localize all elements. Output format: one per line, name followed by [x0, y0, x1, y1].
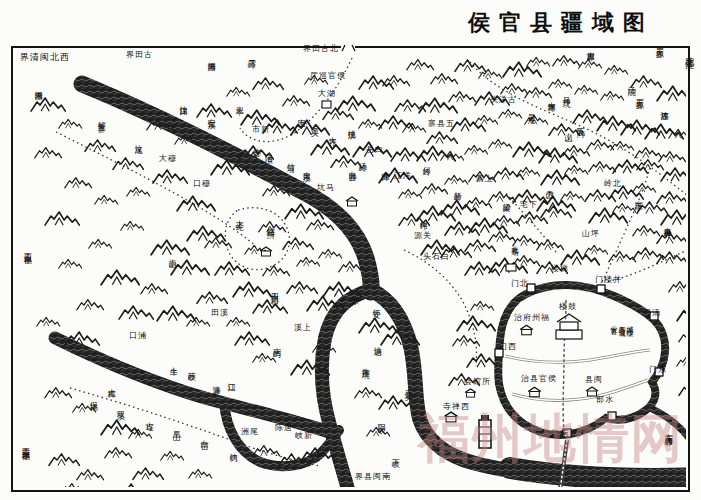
mountain-icon: [77, 470, 104, 480]
mountain-icon: [305, 75, 328, 84]
mountain-icon: [549, 124, 580, 136]
mountain-icon: [151, 240, 189, 255]
mountain-icon: [263, 266, 290, 276]
mountain-icon: [453, 336, 480, 346]
mountain-icon: [153, 170, 187, 183]
mountain-icon: [45, 212, 79, 225]
mountain-icon: [287, 282, 318, 294]
mountain-icon: [431, 74, 458, 84]
mountain-icon: [441, 200, 479, 215]
mountain-icon: [141, 284, 168, 294]
mountain-icon: [489, 192, 516, 202]
mountain-icon: [233, 282, 271, 297]
mountain-icon: [679, 384, 701, 396]
mountain-icon: [355, 388, 382, 398]
mountain-icon: [379, 168, 417, 183]
mountain-icon: [613, 203, 636, 212]
mountain-icon: [319, 249, 342, 258]
mountain-icon: [501, 84, 528, 94]
mountain-icon: [171, 260, 209, 275]
mountain-icon: [307, 220, 334, 230]
mountain-icon: [635, 148, 662, 158]
mountain-icon: [525, 115, 548, 124]
mountain-icon: [157, 306, 195, 321]
map-page: 侯官县疆域图: [0, 0, 701, 500]
mountain-icon: [45, 388, 72, 398]
mountain-icon: [489, 232, 516, 242]
mountain-icon: [657, 86, 695, 101]
mountain-icon: [73, 403, 96, 412]
mountain-icon: [657, 192, 688, 204]
mountain-icon: [359, 76, 393, 89]
watermark: 福州地情网: [418, 404, 683, 474]
mountain-icon: [49, 454, 80, 466]
guild-hall-icon: [465, 389, 476, 397]
parade-ground-icon: [506, 264, 516, 271]
mountain-icon: [113, 158, 144, 170]
mountain-icon: [637, 202, 668, 214]
mountain-icon: [379, 396, 413, 409]
mountain-icon: [679, 332, 701, 342]
mountain-icon: [205, 238, 232, 248]
mountain-icon: [479, 69, 502, 78]
mountain-icon: [669, 282, 696, 292]
mountain-icon: [59, 259, 82, 268]
baisha-house-icon: [346, 197, 358, 206]
mountain-icon: [513, 256, 540, 266]
mountain-icon: [353, 142, 391, 157]
river-min-upper: [82, 84, 371, 292]
mountain-icon: [367, 427, 390, 436]
mountain-icon: [513, 236, 540, 246]
mountain-icon: [579, 59, 602, 68]
mountain-icon: [645, 124, 683, 139]
mountain-icon: [465, 198, 492, 208]
mountain-icon: [475, 92, 509, 105]
mountain-icon: [449, 92, 476, 102]
mountain-icon: [457, 316, 495, 331]
mountain-icon: [613, 160, 647, 173]
mountain-icon: [499, 109, 522, 118]
mountain-icon: [253, 446, 280, 456]
mountain-icon: [215, 262, 249, 275]
mountain-icon: [105, 448, 132, 458]
mountain-icon: [37, 317, 60, 326]
mountain-icon: [489, 139, 512, 148]
mountain-icon: [263, 120, 297, 133]
mountain-icon: [77, 300, 104, 310]
mountain-icon: [513, 190, 547, 203]
mountain-icon: [59, 119, 82, 128]
mountain-icon: [253, 300, 287, 313]
mountain-icon: [659, 152, 686, 162]
mountain-icon: [589, 162, 616, 172]
mountain-icon: [417, 206, 455, 221]
east-gate: [655, 368, 663, 376]
minxian-yamen-icon: [586, 387, 598, 396]
mountain-icon: [493, 216, 520, 226]
tang-gate: [650, 312, 658, 320]
mountain-icon: [197, 292, 228, 304]
mountain-icon: [469, 172, 496, 182]
mountain-icon: [383, 76, 410, 86]
mountain-icon: [189, 469, 212, 478]
mountain-icon: [549, 79, 572, 88]
mountain-icon: [331, 156, 362, 168]
mountain-icon: [121, 221, 144, 230]
mountain-icon: [677, 357, 700, 366]
mountain-icon: [525, 88, 552, 98]
mountain-icon: [445, 175, 468, 184]
mountain-icon: [661, 168, 695, 181]
mountain-icon: [227, 317, 250, 326]
mountain-icon: [399, 214, 430, 226]
mountain-icon: [601, 91, 624, 100]
mountain-icon: [403, 123, 426, 132]
river-west-branch: [322, 290, 371, 500]
mountain-icon: [587, 140, 614, 150]
mountain-icon: [633, 226, 660, 236]
mountain-icon: [427, 132, 458, 144]
mountain-icon: [253, 353, 276, 362]
mountain-icon: [101, 270, 139, 285]
mountain-icon: [561, 191, 584, 200]
mountain-icon: [465, 145, 488, 154]
mountain-icon: [35, 148, 62, 158]
mountain-icon: [259, 222, 286, 232]
mountain-icon: [565, 165, 588, 174]
mountain-icon: [527, 57, 550, 66]
mountain-icon: [89, 239, 112, 248]
mountain-icon: [133, 468, 164, 480]
mountain-icon: [85, 140, 116, 152]
mountain-icon: [657, 232, 688, 244]
mountain-icon: [253, 78, 284, 90]
river-southwest: [55, 338, 339, 466]
mountain-icon: [561, 250, 599, 265]
mountain-icon: [421, 240, 459, 255]
mountain-icon: [283, 96, 310, 106]
mountain-icon: [359, 119, 382, 128]
prefecture-house-icon: [520, 325, 533, 335]
houguan-yamen-icon: [528, 387, 541, 397]
mountain-icon: [471, 301, 494, 310]
mountain-icon: [605, 65, 628, 74]
mountain-icon: [297, 257, 320, 266]
mountain-icon: [589, 208, 627, 223]
mountain-icon: [537, 240, 564, 250]
mountain-icon: [475, 115, 498, 124]
mountain-icon: [677, 306, 701, 321]
mountain-icon: [585, 245, 608, 254]
mountain-icon: [631, 76, 662, 88]
mountain-icon: [465, 240, 496, 252]
jinglou-gate: [597, 285, 605, 293]
border-notch: [341, 44, 355, 51]
dotted-enclosure: [225, 208, 289, 270]
mountain-icon: [311, 140, 349, 155]
mountain-icon: [633, 248, 664, 260]
mountain-icon: [235, 332, 269, 345]
mountain-icon: [563, 146, 590, 156]
mountain-icon: [407, 60, 434, 70]
mountain-icon: [553, 56, 580, 66]
drum-tower-icon: [556, 314, 582, 339]
mountain-icon: [621, 120, 659, 135]
mountain-icon: [611, 141, 634, 150]
mountain-icon: [575, 85, 598, 94]
mountain-icon: [31, 98, 65, 111]
mountain-icon: [337, 96, 375, 111]
mountain-icon: [359, 318, 397, 333]
mountain-icon: [421, 184, 448, 194]
mountain-icon: [541, 170, 579, 185]
north-gate: [527, 284, 535, 292]
mountain-icon: [197, 104, 231, 117]
mountain-icon: [177, 196, 215, 211]
west-gate: [495, 349, 503, 357]
mountain-icon: [633, 183, 656, 192]
mountain-icon: [61, 484, 88, 494]
mountain-icon: [95, 195, 118, 204]
dahu-post-icon: [322, 101, 331, 108]
mountain-icon: [65, 178, 92, 188]
mountain-icon: [539, 148, 577, 163]
mountain-icon: [117, 484, 151, 497]
mountain-icon: [119, 306, 153, 319]
mountain-icon: [449, 374, 480, 386]
mountain-icon: [227, 87, 250, 96]
mountain-icon: [161, 451, 184, 460]
mountain-icon: [573, 110, 607, 123]
mountain-icon: [187, 317, 210, 326]
mountain-icon: [241, 110, 279, 125]
mountain-icon: [283, 238, 314, 250]
mountain-icon: [455, 60, 486, 72]
mountain-icon: [187, 226, 225, 241]
zhuqi-house-icon: [260, 247, 272, 256]
mountain-icon: [399, 189, 422, 198]
mountain-icon: [503, 62, 541, 77]
mountain-icon: [127, 187, 150, 196]
